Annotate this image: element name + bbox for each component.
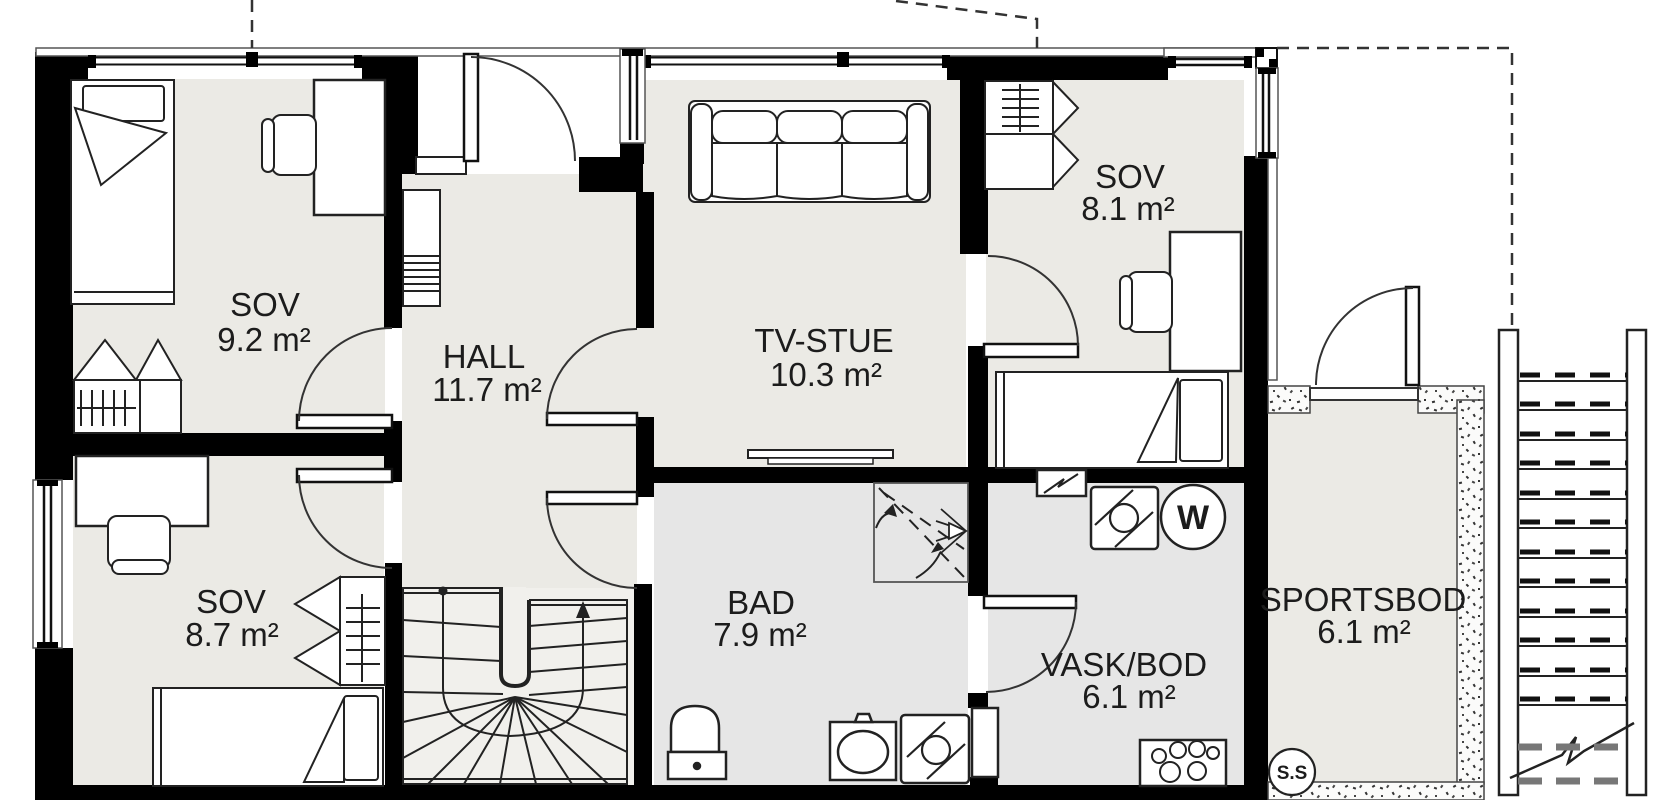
- svg-text:S.S: S.S: [1277, 763, 1308, 784]
- svg-text:TV-STUE: TV-STUE: [754, 322, 893, 359]
- svg-text:7.9 m²: 7.9 m²: [713, 616, 807, 653]
- svg-text:8.1 m²: 8.1 m²: [1081, 190, 1175, 227]
- svg-text:10.3 m²: 10.3 m²: [770, 356, 882, 393]
- svg-text:W: W: [1177, 499, 1210, 537]
- svg-text:SOV: SOV: [196, 583, 266, 620]
- svg-text:8.7 m²: 8.7 m²: [185, 616, 279, 653]
- svg-text:6.1 m²: 6.1 m²: [1082, 678, 1176, 715]
- svg-text:9.2 m²: 9.2 m²: [217, 321, 311, 358]
- svg-text:HALL: HALL: [443, 338, 526, 375]
- svg-text:6.1 m²: 6.1 m²: [1317, 613, 1411, 650]
- svg-text:11.7 m²: 11.7 m²: [432, 371, 541, 408]
- svg-text:SOV: SOV: [230, 286, 300, 323]
